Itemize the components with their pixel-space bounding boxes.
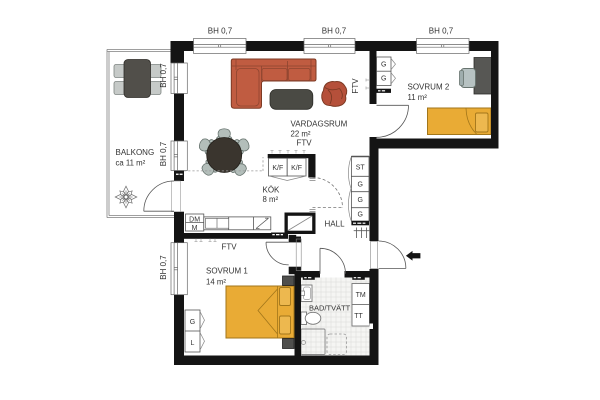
svg-text:G: G (357, 182, 362, 189)
svg-text:G: G (381, 62, 386, 69)
svg-text:BALKONG: BALKONG (116, 148, 155, 157)
svg-text:TM: TM (356, 292, 366, 299)
svg-text:G: G (357, 197, 362, 204)
svg-text:K/F: K/F (291, 165, 302, 172)
svg-text:G: G (357, 212, 362, 219)
svg-text:BAD/TVÄTT: BAD/TVÄTT (309, 304, 351, 313)
svg-text:BH 0,7: BH 0,7 (429, 27, 454, 36)
svg-text:BH 0,7: BH 0,7 (322, 27, 347, 36)
svg-text:HALL: HALL (325, 220, 346, 229)
svg-text:G: G (190, 319, 195, 326)
svg-text:BH 0,7: BH 0,7 (159, 63, 168, 88)
svg-text:DM: DM (189, 217, 200, 224)
svg-text:BH 0,7: BH 0,7 (208, 27, 233, 36)
svg-text:BH 0,7: BH 0,7 (159, 141, 168, 166)
svg-text:11 m²: 11 m² (408, 93, 428, 102)
svg-text:ST: ST (356, 165, 366, 172)
svg-text:FTV: FTV (222, 243, 238, 252)
svg-text:8 m²: 8 m² (263, 195, 279, 204)
svg-text:VARDAGSRUM: VARDAGSRUM (291, 120, 348, 129)
svg-text:TT: TT (354, 313, 363, 320)
svg-text:FTV: FTV (351, 78, 360, 94)
svg-text:14 m²: 14 m² (206, 277, 226, 286)
svg-text:SOVRUM 2: SOVRUM 2 (408, 83, 450, 92)
svg-text:G: G (381, 76, 386, 83)
svg-text:ca 11 m²: ca 11 m² (116, 158, 146, 167)
svg-text:22 m²: 22 m² (291, 130, 311, 139)
svg-text:KÖK: KÖK (263, 186, 281, 195)
svg-text:BH 0,7: BH 0,7 (159, 255, 168, 280)
svg-text:SOVRUM 1: SOVRUM 1 (206, 267, 248, 276)
svg-text:M: M (192, 225, 198, 232)
svg-text:FTV: FTV (297, 139, 313, 148)
svg-text:K/F: K/F (272, 165, 283, 172)
svg-text:L: L (191, 340, 195, 347)
